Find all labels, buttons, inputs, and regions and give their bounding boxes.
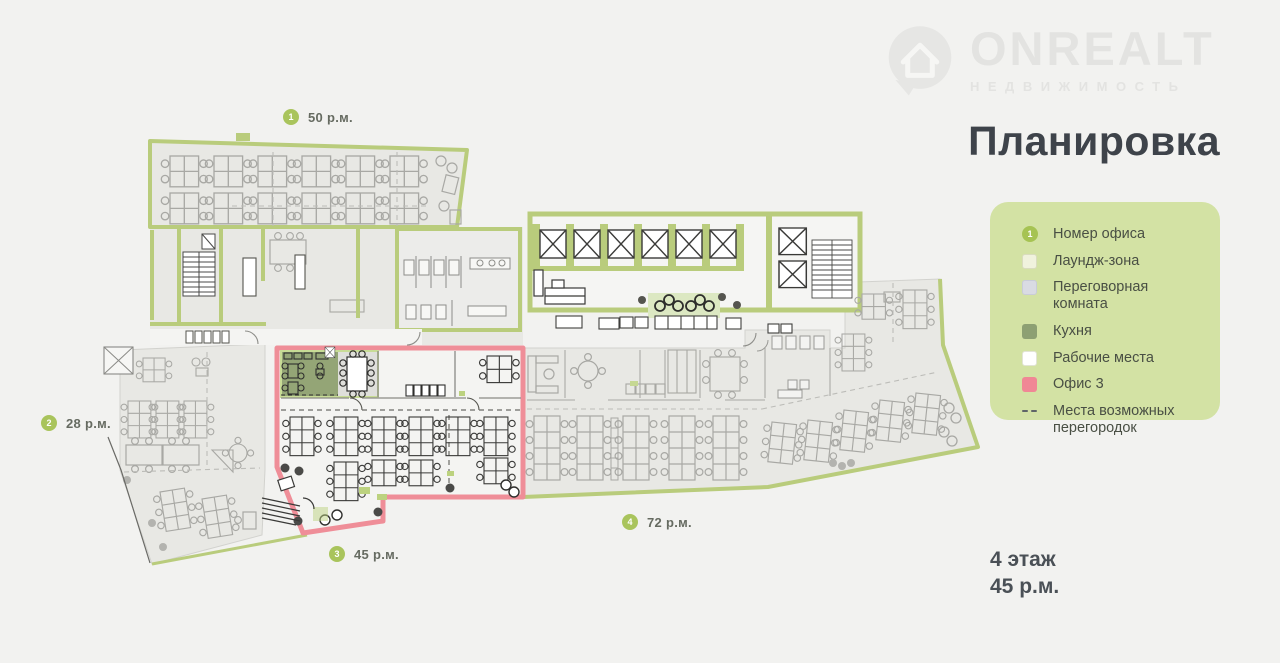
legend-item-meeting: Переговорная комната (1022, 279, 1200, 313)
floor-area: 45 р.м. (990, 573, 1059, 600)
legend-item-kitchen: Кухня (1022, 323, 1200, 340)
onrealt-logo: ONREALT НЕДВИЖИМОСТЬ (884, 24, 1215, 100)
logo-subtitle: НЕДВИЖИМОСТЬ (970, 79, 1215, 94)
legend-panel: 1 Номер офиса Лаундж-зона Переговорная к… (990, 202, 1220, 420)
office-1-number-badge: 1 (283, 109, 299, 125)
legend-item-lounge: Лаундж-зона (1022, 253, 1200, 270)
floor-info: 4 этаж 45 р.м. (990, 546, 1059, 601)
logo-text: ONREALT (970, 24, 1215, 73)
office-3-area-text: 45 р.м. (354, 547, 399, 562)
legend-item-office3: Офис 3 (1022, 376, 1200, 393)
planировка-page: 1 50 р.м. 2 28 р.м. 3 45 р.м. 4 72 р.м. … (0, 0, 1280, 663)
office-4-label: 4 72 р.м. (622, 514, 692, 530)
legend-item-workplaces: Рабочие места (1022, 350, 1200, 367)
office-3-area (262, 347, 523, 533)
core-corridor-benches (556, 316, 756, 346)
office-1-label: 1 50 р.м. (283, 109, 353, 125)
page-title: Планировка (958, 118, 1220, 165)
office-2-label: 2 28 р.м. (41, 415, 111, 431)
partition-dash-icon (1022, 403, 1039, 418)
legend-label: Лаундж-зона (1053, 253, 1139, 270)
office-4-number-badge: 4 (622, 514, 638, 530)
workplaces-swatch (1022, 351, 1037, 366)
house-icon (884, 24, 956, 100)
corridor (150, 329, 422, 345)
stairwell-core (812, 240, 852, 298)
office-2-number-badge: 2 (41, 415, 57, 431)
elevator-core (530, 214, 860, 318)
office-3-number-badge: 3 (329, 546, 345, 562)
office-4-area-text: 72 р.м. (647, 515, 692, 530)
floor-number: 4 этаж (990, 546, 1059, 573)
office-number-badge: 1 (1022, 226, 1038, 242)
office-1-area-text: 50 р.м. (308, 110, 353, 125)
legend-label: Рабочие места (1053, 350, 1154, 367)
lounge-rug (648, 293, 720, 318)
legend-label: Переговорная комната (1053, 279, 1200, 313)
legend-label: Места возможных перегородок (1053, 403, 1200, 437)
legend-item-office-number: 1 Номер офиса (1022, 226, 1200, 243)
office-3-label: 3 45 р.м. (329, 546, 399, 562)
legend-item-partitions: Места возможных перегородок (1022, 403, 1200, 437)
wc-block (397, 229, 520, 330)
office-2-area (104, 344, 265, 564)
legend-label: Номер офиса (1053, 226, 1145, 243)
office-2-area-text: 28 р.м. (66, 416, 111, 431)
legend-label: Кухня (1053, 323, 1092, 340)
meeting-room-swatch (1022, 280, 1037, 295)
office-3-swatch (1022, 377, 1037, 392)
kitchen-swatch (1022, 324, 1037, 339)
legend-label: Офис 3 (1053, 376, 1104, 393)
lounge-swatch (1022, 254, 1037, 269)
lockers (406, 385, 445, 396)
